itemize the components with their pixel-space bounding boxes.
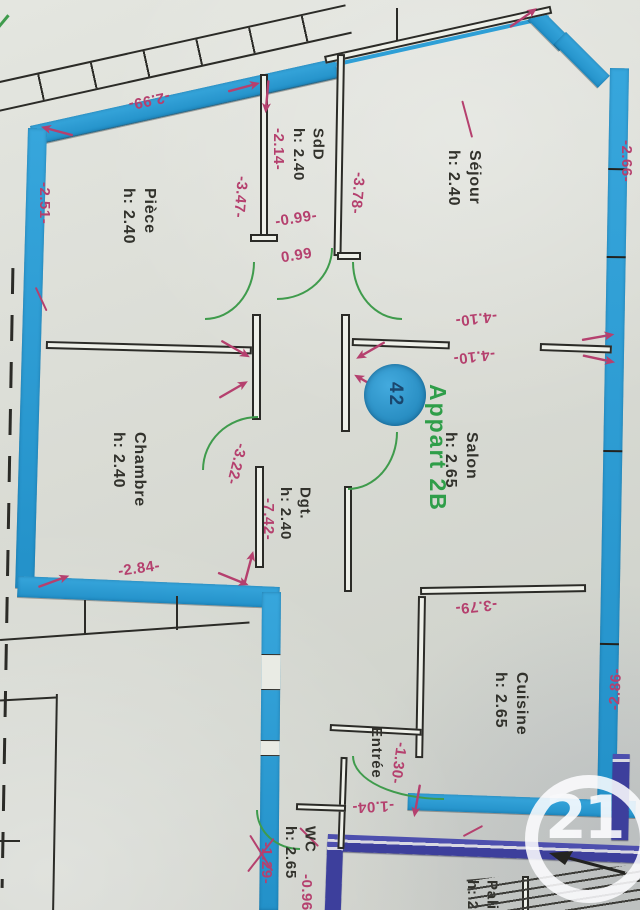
room-label-cuisine: Cuisineh: 2.65 — [490, 672, 532, 735]
dashed-boundary — [1, 268, 15, 888]
room-label-chambre: Chambreh: 2.40 — [108, 432, 150, 507]
red-scribble — [461, 101, 473, 138]
dim-347: -3.47- — [230, 175, 251, 219]
room-label-wc: WCh: 2.65 — [280, 826, 320, 879]
neighbour-wall-line — [0, 840, 20, 842]
floor-plan-photo: Séjourh: 2.40 Pièceh: 2.40 SdDh: 2.40 Ch… — [0, 0, 640, 910]
wall-sdd-sejour — [333, 54, 345, 256]
room-label-sejour: Séjourh: 2.40 — [443, 150, 485, 206]
wall-corridor-left-upper — [252, 314, 261, 420]
wall-salon-cuisine — [420, 584, 586, 595]
dim-104: -1.04- — [352, 797, 395, 816]
wall-palier-left — [325, 842, 343, 910]
dim-129: -1.29- — [258, 842, 275, 884]
dim-251: -2.51- — [36, 182, 53, 224]
dim-096: -0.96- — [298, 874, 315, 910]
room-label-dgt: Dgt.h: 2.40 — [275, 487, 315, 540]
door-gap — [261, 740, 280, 756]
door-arc-fragment — [0, 14, 10, 37]
red-scribble — [463, 825, 484, 837]
wall-wc-top — [296, 803, 346, 812]
dim-742: -7.42- — [260, 498, 277, 540]
room-label-entree: Entrée — [366, 727, 386, 779]
apartment-label: Appart 2B — [424, 384, 451, 512]
unit-badge-number: 42 — [384, 382, 406, 407]
door-arc-hall-left — [205, 262, 255, 320]
dim-379: -3.79- — [454, 596, 498, 617]
masonry-tick — [607, 256, 626, 258]
dim-099a: -0.99- — [274, 207, 318, 230]
masonry-tick — [600, 643, 619, 645]
door-arc-hall-right — [352, 262, 402, 320]
wall-corridor-right-upper — [341, 314, 350, 432]
room-label-piece: Pièceh: 2.40 — [118, 188, 160, 244]
door-arc-salon — [348, 432, 398, 490]
dimension-arrow — [255, 79, 276, 114]
door-gap — [261, 654, 280, 690]
dim-266: -2.66- — [618, 140, 635, 182]
neighbour-wall-stub — [84, 600, 86, 634]
dim-410b: -4.10- — [452, 345, 496, 367]
dim-378: -3.78- — [347, 171, 368, 215]
dim-284: -2.84- — [117, 557, 161, 580]
century21-watermark: 21 — [505, 765, 640, 910]
wall-corridor-right-lower — [344, 486, 352, 592]
century21-number: 21 — [545, 783, 623, 853]
dim-410a: -4.10- — [454, 307, 498, 329]
unit-badge: 42 — [364, 364, 426, 426]
neighbour-wall-line — [0, 697, 56, 702]
masonry-tick — [603, 450, 622, 452]
neighbour-wall-line — [0, 622, 250, 641]
neighbour-wall-line — [52, 694, 58, 910]
dim-286: -2.86- — [606, 668, 625, 711]
door-jamb — [250, 234, 278, 242]
dim-214: -2.14- — [270, 128, 287, 170]
door-jamb — [337, 252, 361, 260]
room-label-sdd: SdDh: 2.40 — [288, 128, 328, 181]
balcony-divider-line — [396, 8, 398, 40]
neighbour-wall-stub — [176, 596, 178, 630]
dimension-arrow — [216, 335, 254, 368]
dimension-arrow — [216, 375, 254, 408]
wall-corner-diagonal-2 — [554, 32, 610, 88]
